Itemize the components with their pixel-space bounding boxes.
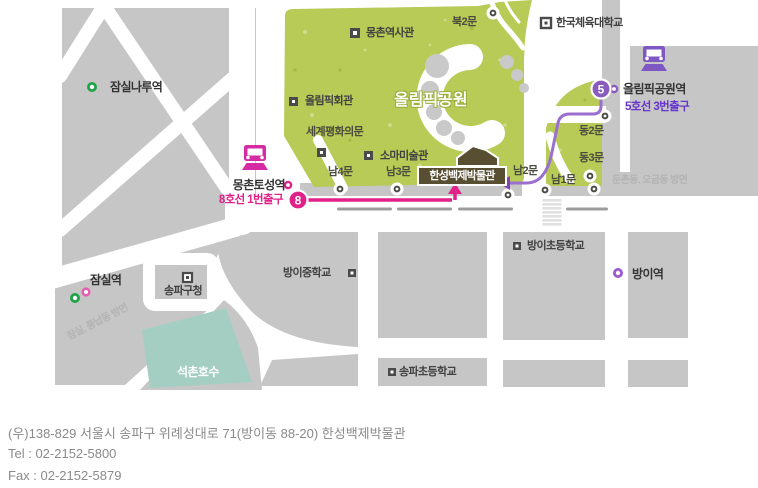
label-songpa-gu-office: 송파구청	[164, 285, 202, 297]
label-bangi-middle-school: 방이중학교	[283, 267, 331, 279]
label-mongchontoseong-station: 몽촌토성역	[233, 179, 285, 192]
label-north-gate2: 북2문	[452, 16, 477, 28]
label-soma-museum: 소마미술관	[380, 150, 428, 162]
label-south-gate1: 남1문	[551, 174, 576, 186]
label-jamsilnaru-station: 잠실나루역	[110, 81, 162, 94]
label-seokchon-lake: 석촌호수	[177, 366, 219, 379]
park-name-label: 올림픽공원	[394, 92, 468, 110]
label-bangi-elementary-school: 방이초등학교	[527, 240, 584, 252]
label-world-peace-gate: 세계평화의문	[306, 126, 363, 138]
bangi-station-dot	[613, 268, 623, 278]
label-korea-national-sport-univ: 한국체육대학교	[556, 17, 623, 29]
gate-dot	[334, 183, 347, 196]
square-marker	[350, 28, 360, 38]
label-mongchon-history-hall: 몽촌역사관	[366, 27, 414, 39]
line8-badge: 8	[289, 191, 308, 210]
gate-dot	[502, 189, 515, 202]
svg-text:5: 5	[598, 83, 605, 97]
label-south-gate2: 남2문	[513, 165, 538, 177]
square-marker	[289, 97, 298, 106]
square-marker	[364, 151, 373, 160]
label-jamsil-station: 잠실역	[90, 274, 121, 287]
label-olympic-hall: 올림픽회관	[305, 95, 353, 107]
hanseong-baekje-museum-label: 한성백제박물관	[417, 166, 507, 186]
hanseong-baekje-museum-location-map: 8 5 올림픽공원 몽촌역사관 북2문 한국체육대학교 올림픽회관 세계평화의문…	[0, 0, 758, 488]
gate-dot	[487, 7, 500, 20]
gate-dot	[584, 170, 597, 183]
label-east-gate3: 동3문	[579, 152, 604, 164]
label-line5-exit: 5호선 3번출구	[625, 101, 689, 114]
gate-dot	[391, 183, 404, 196]
square-marker	[183, 273, 192, 282]
museum-address: (우)138-829 서울시 송파구 위례성대로 71(방이동 88-20) 한…	[8, 423, 406, 442]
square-marker	[317, 148, 326, 157]
square-marker	[348, 269, 356, 277]
square-marker	[513, 242, 521, 250]
label-line8-exit: 8호선 1번출구	[219, 194, 283, 207]
jamsilnaru-station-dot	[87, 82, 97, 92]
svg-text:8: 8	[295, 194, 302, 208]
square-marker	[541, 18, 551, 28]
label-olympic-park-station: 올림픽공원역	[623, 83, 686, 96]
museum-tel: Tel : 02-2152-5800	[8, 446, 116, 461]
label-direction-dunchon: 둔촌동, 오금동 방면	[612, 175, 687, 186]
line5-badge: 5	[592, 80, 611, 99]
map-graphic: 8 5	[0, 0, 758, 410]
lane-dashes	[337, 208, 608, 211]
museum-fax: Fax : 02-2152-5879	[8, 468, 121, 483]
label-south-gate3: 남3문	[386, 166, 411, 178]
square-marker	[388, 368, 396, 376]
label-south-gate4: 남4문	[328, 166, 353, 178]
gate-dot	[539, 184, 552, 197]
label-bangi-station: 방이역	[632, 268, 663, 281]
line5-train-icon	[641, 46, 667, 71]
crosswalk	[543, 199, 562, 226]
gate-dot	[588, 183, 601, 196]
label-songpa-elementary-school: 송파초등학교	[399, 366, 456, 378]
label-east-gate2: 동2문	[579, 125, 604, 137]
line8-train-icon	[242, 145, 268, 170]
